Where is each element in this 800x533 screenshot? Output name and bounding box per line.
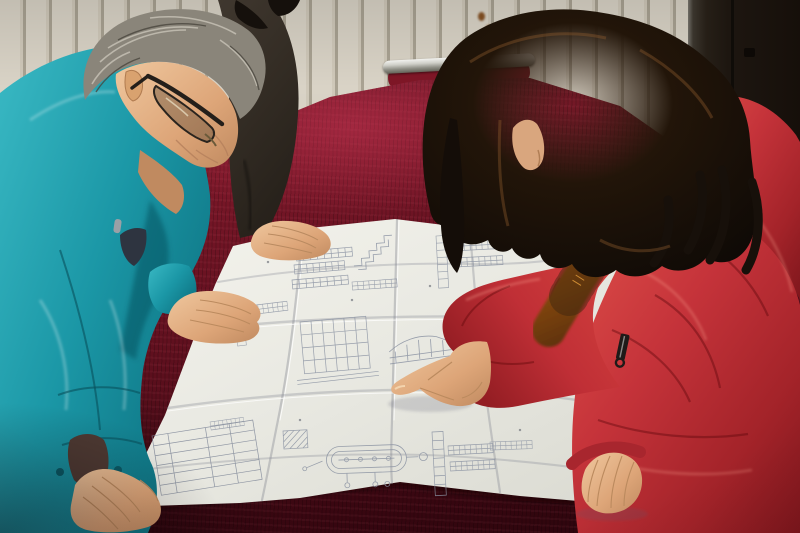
man-cuff-button [56,468,64,476]
man-right-hand [168,291,261,344]
woman-hair [423,9,757,277]
scene-figures [0,0,800,533]
photo-scene [0,0,800,533]
person-behind-hand [251,221,331,260]
